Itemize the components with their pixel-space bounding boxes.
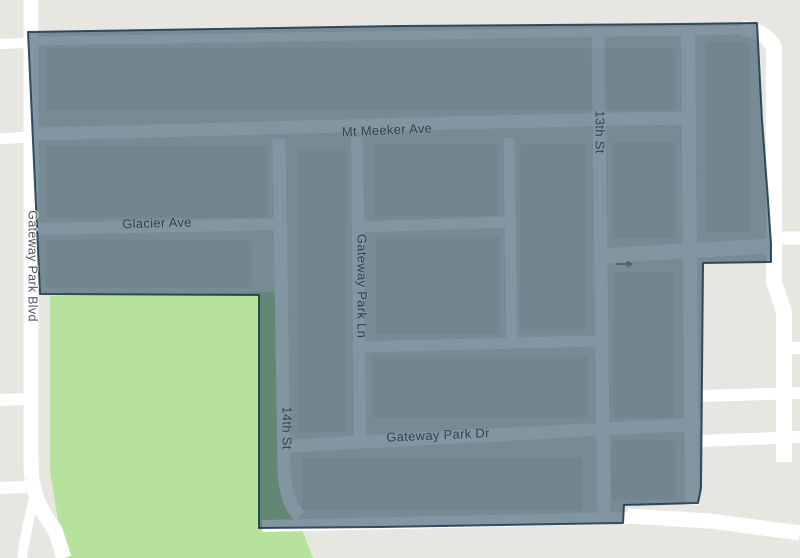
- map-svg: Mt Meeker Ave Glacier Ave Gateway Park D…: [0, 0, 800, 558]
- street-label-14th-st: 14th St: [280, 406, 295, 449]
- map-canvas[interactable]: Mt Meeker Ave Glacier Ave Gateway Park D…: [0, 0, 800, 558]
- road-west-stub-low: [0, 487, 26, 488]
- road-notch-horizontal-2: [701, 437, 800, 441]
- road-west-stub-meeker: [0, 137, 26, 139]
- street-label-gateway-park-ln: Gateway Park Ln: [355, 234, 370, 338]
- road-west-stub-top: [0, 43, 26, 44]
- road-west-stub-mid: [0, 399, 28, 400]
- street-label-gateway-park-blvd: Gateway Park Blvd: [26, 210, 40, 321]
- street-label-13th-st: 13th St: [593, 110, 608, 153]
- street-label-glacier-ave: Glacier Ave: [122, 215, 192, 232]
- road-notch-horizontal-1: [701, 393, 800, 396]
